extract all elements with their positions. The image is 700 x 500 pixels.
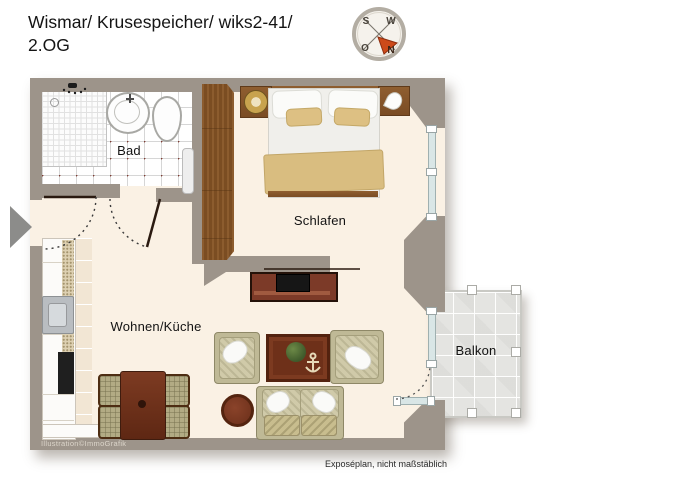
table-lamp-icon	[244, 90, 268, 114]
wall-left-lower	[30, 246, 42, 450]
dining-chair	[162, 405, 190, 439]
compass-rose-icon: S W O N	[351, 6, 407, 62]
balcony-railing-post	[467, 408, 477, 418]
window-cap	[427, 396, 435, 406]
title-line-1: Wismar/ Krusespeicher/ wiks2-41/	[28, 11, 293, 34]
room-label-living-kitchen: Wohnen/Küche	[96, 319, 216, 334]
balcony-railing-post	[511, 285, 521, 295]
balcony-railing-post	[467, 285, 477, 295]
accent-pillow	[286, 107, 323, 127]
accent-pillow	[334, 107, 371, 127]
balcony-railing-post	[511, 408, 521, 418]
tv	[276, 274, 310, 292]
scale-disclaimer: Exposéplan, nicht maßstäblich	[297, 459, 447, 469]
dining-table-knob	[138, 400, 146, 408]
bed-blanket	[263, 149, 385, 194]
balcony-door-sidelight	[428, 310, 436, 366]
wardrobe-divider	[202, 190, 232, 191]
bed-footboard	[268, 191, 378, 197]
stove	[58, 352, 74, 394]
kitchen-floor-tiles	[74, 238, 92, 438]
page-title: Wismar/ Krusespeicher/ wiks2-41/ 2.OG	[28, 11, 293, 57]
window-cap	[426, 360, 437, 368]
entrance-arrow-icon	[10, 206, 32, 248]
window-cap	[426, 125, 437, 133]
window-cap	[426, 307, 437, 315]
wardrobe	[202, 84, 234, 260]
wardrobe-divider	[202, 128, 232, 129]
towel-radiator	[182, 148, 194, 194]
sofa-back-cushion	[301, 415, 337, 436]
compass-letter-w: W	[386, 16, 396, 27]
room-label-bathroom: Bad	[99, 143, 159, 158]
floorplan-page: Wismar/ Krusespeicher/ wiks2-41/ 2.OG S …	[0, 0, 700, 500]
room-label-bedroom: Schlafen	[260, 213, 380, 228]
dining-chair	[162, 374, 190, 407]
compass-letter-n: N	[387, 45, 394, 56]
compass-letter-s: S	[363, 16, 370, 27]
shower-drain-icon	[50, 98, 59, 107]
compass-letter-o: O	[361, 43, 369, 54]
window-cap	[426, 213, 437, 221]
title-line-2: 2.OG	[28, 34, 293, 57]
bathroom-sink-basin	[114, 100, 140, 124]
room-label-balcony: Balkon	[436, 343, 516, 358]
kitchen-sink-basin	[48, 303, 67, 327]
window-cap	[393, 396, 401, 406]
sofa-back-cushion	[264, 415, 300, 436]
cabinet-divider	[42, 420, 74, 421]
plant-icon	[286, 342, 306, 362]
wall-bathroom-bottom-left	[30, 184, 120, 198]
wall-left-upper	[30, 78, 42, 200]
illustration-credit: Illustration©ImmoGrafik	[41, 439, 126, 448]
window-cap	[426, 168, 437, 176]
wardrobe-divider	[202, 238, 232, 239]
side-table	[221, 394, 254, 427]
cabinet-divider	[42, 394, 74, 395]
